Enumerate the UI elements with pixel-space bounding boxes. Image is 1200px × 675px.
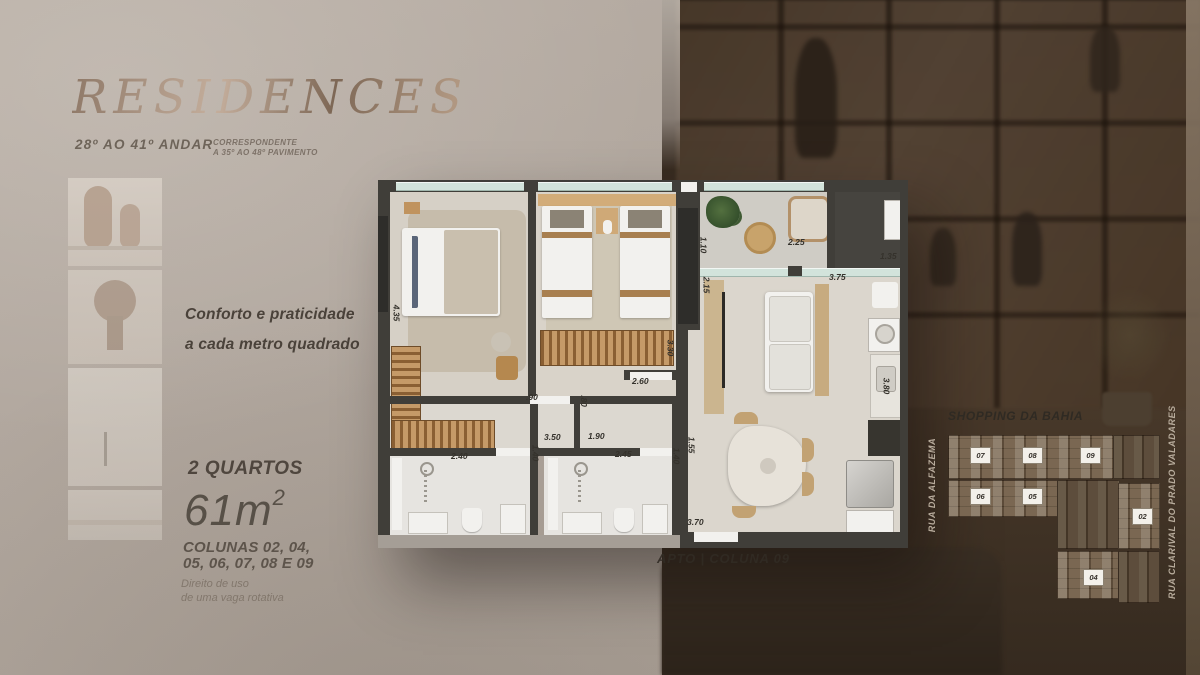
- dimension-label: .80: [579, 395, 589, 407]
- area-value: 61m: [184, 486, 273, 535]
- vase-silhouette: [930, 228, 956, 286]
- faucet: [104, 432, 107, 466]
- shelf-line: [68, 246, 162, 250]
- keyplan-unit-08: 08: [1022, 447, 1043, 464]
- keyplan-unit-06: 06: [970, 488, 991, 505]
- columns-line2: 05, 06, 07, 08 E 09: [183, 556, 314, 572]
- keyplan-units-layer: 07080906050204: [915, 395, 1200, 620]
- floors-note-line2: A 35º AO 48º PAVIMENTO: [213, 148, 318, 158]
- vase-silhouette: [1090, 26, 1120, 92]
- parking-line2: de uma vaga rotativa: [181, 591, 284, 605]
- dimension-label: 1.40: [530, 445, 540, 462]
- dimension-label: 3.70: [687, 517, 704, 527]
- keyplan-unit-04: 04: [1083, 569, 1104, 586]
- tagline-line1: Conforto e praticidade: [185, 300, 360, 330]
- dimension-label: .90: [526, 392, 538, 402]
- dimension-label: 1.55: [686, 437, 696, 454]
- floors-range-label: 28º AO 41º ANDAR: [75, 137, 213, 152]
- dimension-label: 2.25: [788, 237, 805, 247]
- photo-kitchen: [68, 368, 162, 486]
- parking-line1: Direito de uso: [181, 577, 284, 591]
- dimension-label: 3.50: [544, 432, 561, 442]
- parking-note: Direito de uso de uma vaga rotativa: [181, 577, 284, 605]
- unit-type-label: 2 QUARTOS: [188, 458, 303, 480]
- keyplan-unit-02: 02: [1132, 508, 1153, 525]
- keyplan-unit-07: 07: [970, 447, 991, 464]
- dimension-label: 2.45: [615, 449, 632, 459]
- dimension-label: 3.30: [665, 340, 675, 357]
- floor-plan: 4.351.102.251.353.752.153.302.60.90.803.…: [378, 180, 908, 548]
- photo-head-sculpture: [68, 270, 162, 364]
- dimension-label: 1.10: [698, 237, 708, 254]
- page: RESIDENCES 28º AO 41º ANDAR CORRESPONDEN…: [0, 0, 1200, 675]
- photo-sculptures: [68, 178, 162, 266]
- area-exponent: 2: [273, 485, 286, 510]
- dimension-label: 1.35: [880, 251, 897, 261]
- floors-note: CORRESPONDENTE A 35º AO 48º PAVIMENTO: [213, 138, 318, 158]
- vase-silhouette: [1012, 212, 1042, 286]
- vase-silhouette: [795, 38, 837, 158]
- keyplan-unit-09: 09: [1080, 447, 1101, 464]
- dimension-label: 1.40: [671, 448, 681, 465]
- dimension-label: 3.75: [829, 272, 846, 282]
- dimension-label: 1.90: [588, 431, 605, 441]
- tagline-line2: a cada metro quadrado: [185, 330, 360, 360]
- brand-logo: RESIDENCES: [72, 70, 492, 125]
- dimension-label: 2.60: [632, 376, 649, 386]
- columns-line1: COLUNAS 02, 04,: [183, 540, 314, 556]
- floors-note-line1: CORRESPONDENTE: [213, 138, 318, 148]
- dimension-label: 2.15: [701, 277, 711, 294]
- photo-light-edge: [662, 0, 680, 170]
- dimension-label: 4.35: [391, 305, 401, 322]
- area-label: 61m2: [184, 486, 286, 536]
- street-label-right: RUA CLARIVAL DO PRADO VALADARES: [1167, 421, 1177, 599]
- measurement-layer: 4.351.102.251.353.752.153.302.60.90.803.…: [378, 180, 908, 548]
- sculpture-neck: [107, 316, 123, 350]
- photo-counter: [68, 490, 162, 540]
- sculpture-figure: [120, 204, 140, 248]
- street-label-left: RUA DA ALFAZEMA: [927, 430, 937, 540]
- floorplan-caption: APTO | COLUNA 09: [657, 551, 790, 566]
- tagline: Conforto e praticidade a cada metro quad…: [185, 300, 360, 360]
- dimension-label: 2.40: [451, 451, 468, 461]
- sculpture-figure: [84, 186, 112, 248]
- keyplan: SHOPPING DA BAHIA 07080906050204 RUA DA …: [915, 395, 1200, 620]
- keyplan-unit-05: 05: [1022, 488, 1043, 505]
- counter-line: [68, 520, 162, 525]
- dimension-label: 3.80: [881, 378, 891, 395]
- columns-label: COLUNAS 02, 04, 05, 06, 07, 08 E 09: [183, 540, 314, 572]
- decor-photo-strip: [68, 178, 162, 540]
